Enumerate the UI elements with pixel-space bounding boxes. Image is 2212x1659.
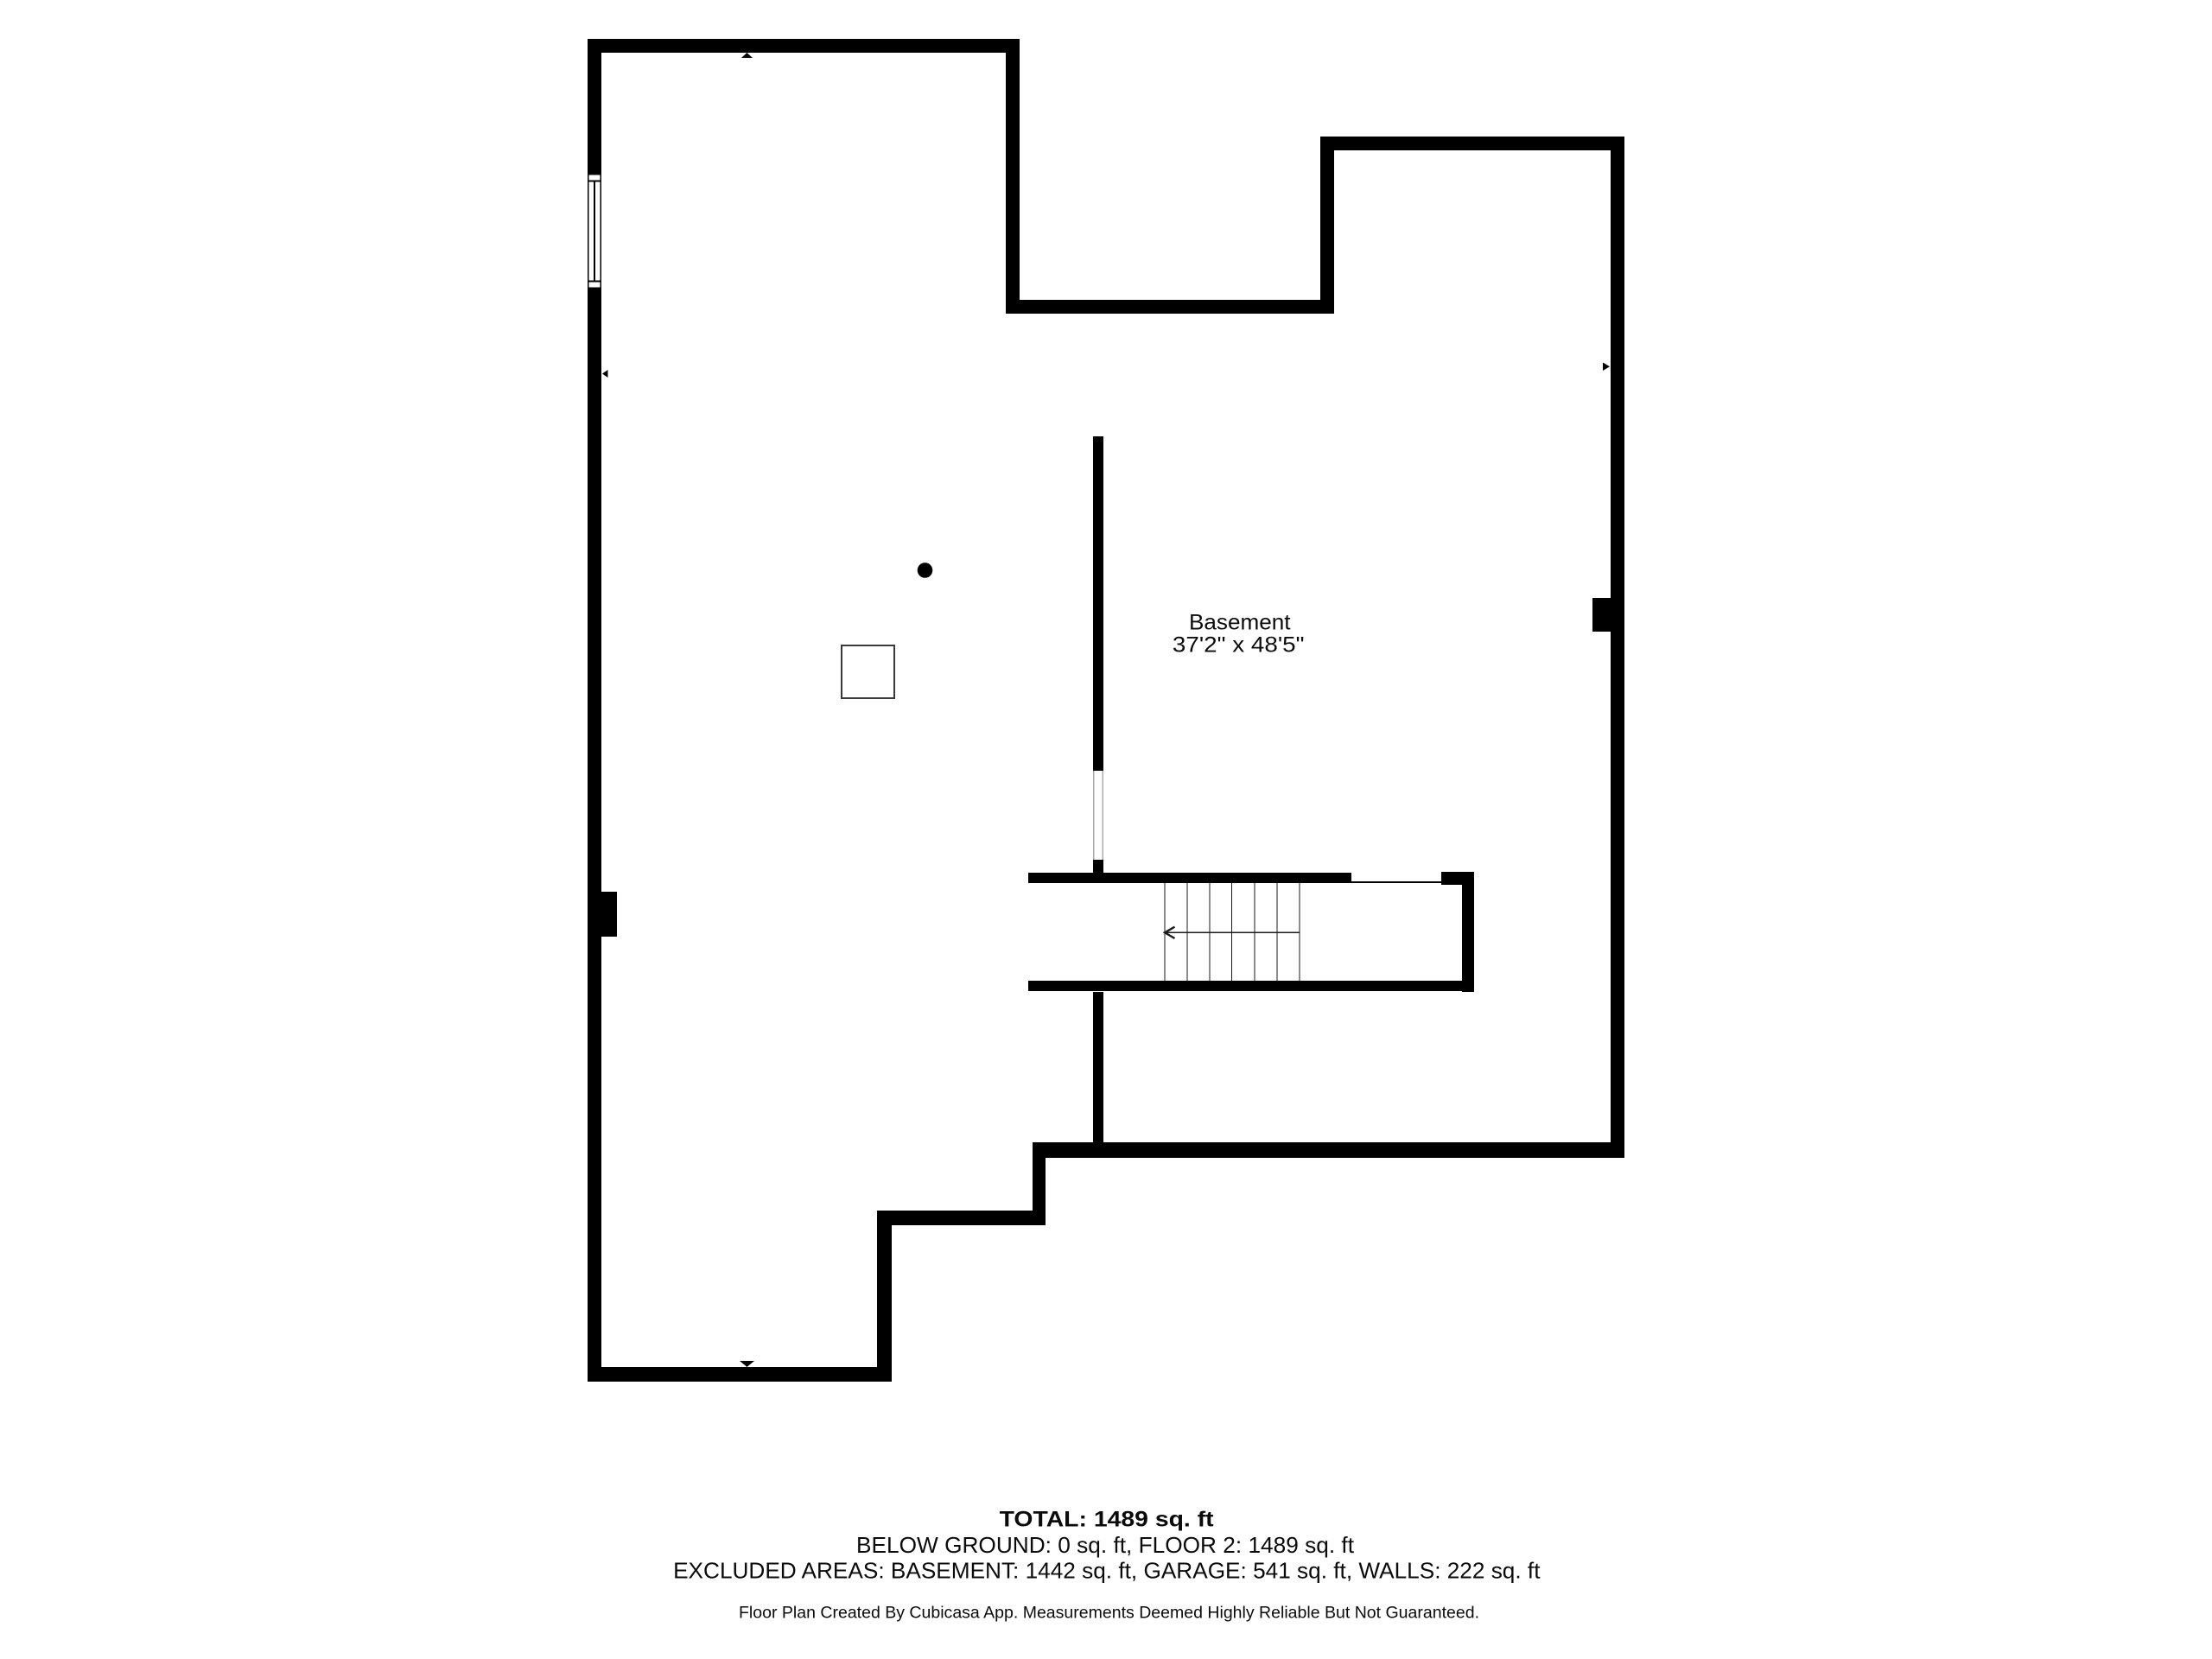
svg-text:BELOW GROUND: 0 sq. ft, FLOOR: BELOW GROUND: 0 sq. ft, FLOOR 2: 1489 sq… xyxy=(856,1532,1355,1558)
svg-text:Floor Plan Created By Cubicasa: Floor Plan Created By Cubicasa App. Meas… xyxy=(739,1604,1479,1622)
svg-text:TOTAL: 1489 sq. ft: TOTAL: 1489 sq. ft xyxy=(1000,1508,1215,1532)
svg-text:EXCLUDED AREAS: BASEMENT: 1442: EXCLUDED AREAS: BASEMENT: 1442 sq. ft, G… xyxy=(673,1558,1541,1584)
svg-text:37'2" x 48'5": 37'2" x 48'5" xyxy=(1173,633,1305,658)
svg-text:Basement: Basement xyxy=(1189,611,1291,635)
